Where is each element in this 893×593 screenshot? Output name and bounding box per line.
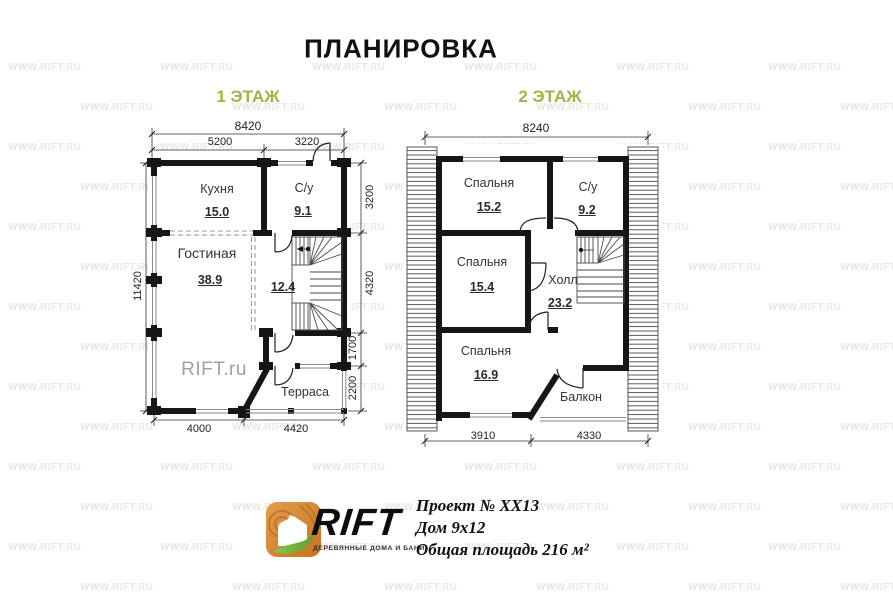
floor1-dim-4000: 4000 (187, 423, 211, 435)
floor1-dim-5200: 5200 (208, 136, 232, 148)
total-area: Общая площадь 216 м² (416, 540, 589, 560)
room-label-balcony: Балкон (560, 390, 602, 404)
floor2-heading: 2 ЭТАЖ (518, 87, 581, 107)
project-number: Проект № XX13 (416, 496, 539, 516)
room-area-bedroom2: 15.4 (470, 280, 494, 294)
room-label-bathroom2: С/у (579, 180, 598, 194)
labels-layer: ПЛАНИРОВКА 1 ЭТАЖ 2 ЭТАЖ 8420 5200 3220 … (0, 0, 893, 591)
floor1-dim-1700: 1700 (347, 336, 359, 360)
inline-watermark: RIFT.ru (181, 359, 247, 381)
house-size: Дом 9x12 (416, 518, 485, 538)
floor1-dim-height: 11420 (132, 271, 144, 301)
room-label-bedroom2: Спальня (457, 255, 507, 269)
room-area-hall2: 23.2 (548, 296, 572, 310)
room-area-bedroom1: 15.2 (477, 200, 501, 214)
floor1-heading: 1 ЭТАЖ (216, 87, 279, 107)
page: { "title": "ПЛАНИРОВКА", "watermark": { … (0, 0, 893, 591)
floor1-dim-3200: 3200 (364, 185, 376, 209)
floor1-dim-4420: 4420 (284, 423, 308, 435)
rift-logo-tagline: ДЕРЕВЯННЫЕ ДОМА И БАНИ (313, 545, 425, 552)
floor1-dim-2200: 2200 (347, 376, 359, 400)
floor2-dim-3910: 3910 (471, 430, 495, 442)
floor1-dim-3220: 3220 (295, 136, 319, 148)
room-area-kitchen: 15.0 (205, 205, 229, 219)
room-label-bathroom1: С/у (295, 181, 314, 195)
room-label-livingroom: Гостиная (178, 245, 237, 261)
room-area-bedroom3: 16.9 (474, 368, 498, 382)
room-label-bedroom3: Спальня (461, 344, 511, 358)
room-area-livingroom: 38.9 (198, 273, 222, 287)
floor2-dim-4330: 4330 (577, 430, 601, 442)
room-label-kitchen: Кухня (200, 182, 233, 196)
page-title: ПЛАНИРОВКА (304, 34, 498, 65)
rift-logo-text: RIFT (310, 502, 403, 545)
room-label-terrace: Терраса (281, 385, 329, 399)
room-label-hall2: Холл (548, 273, 577, 287)
floor2-dim-total-width: 8240 (523, 121, 550, 135)
floor1-dim-4320: 4320 (364, 271, 376, 295)
room-area-bathroom1: 9.1 (294, 204, 311, 218)
floor1-dim-total-width: 8420 (235, 119, 262, 133)
room-area-hall1: 12.4 (271, 280, 295, 294)
room-area-bathroom2: 9.2 (578, 203, 595, 217)
room-label-bedroom1: Спальня (464, 176, 514, 190)
